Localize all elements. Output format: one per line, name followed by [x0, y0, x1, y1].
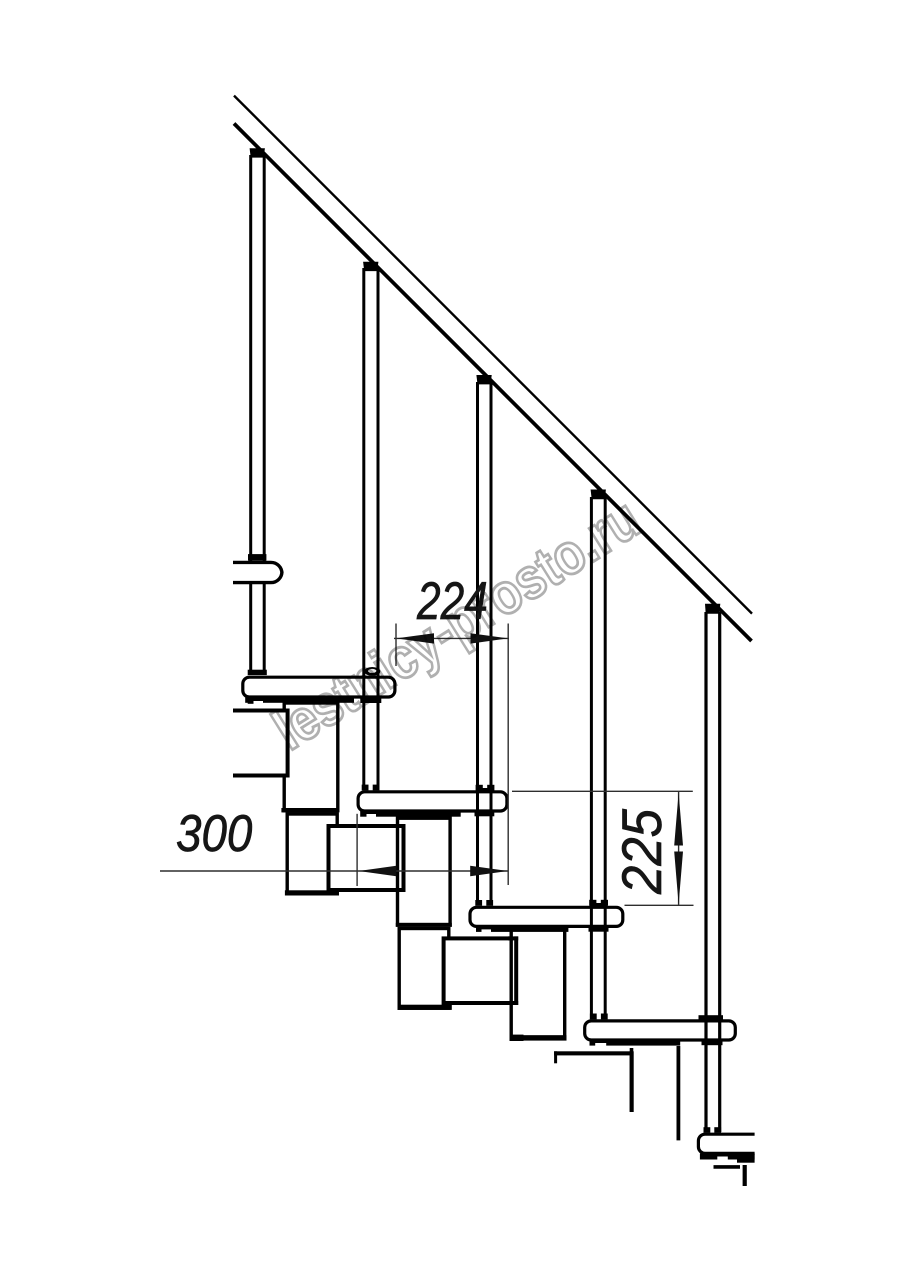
svg-text:225: 225 — [612, 809, 674, 895]
svg-text:300: 300 — [176, 805, 252, 862]
